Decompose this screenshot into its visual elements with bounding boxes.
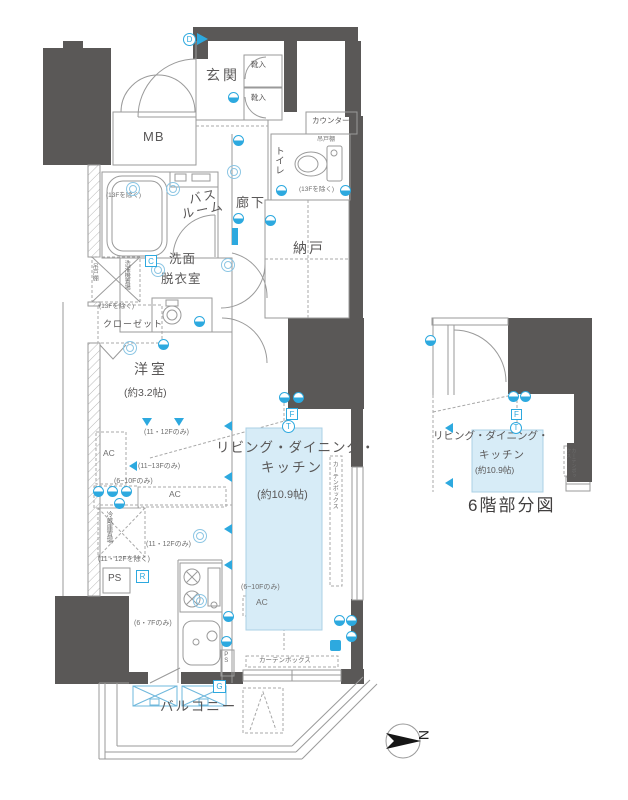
subplan-ldk-size: (約10.9帖) [475,466,514,475]
subplan-curtain-box-label: カーテンボックス [565,448,576,482]
light-icon [265,215,276,226]
light-icon [121,486,132,497]
balcony-outline [99,677,377,759]
note-except-11-12f: (11・12Fを除く) [98,556,150,563]
subplan-f-badge: F [511,409,522,420]
note-6-7f-only: (6・7Fのみ) [134,620,172,627]
doorbell-arrow-icon [197,33,208,45]
light-icon [520,391,531,402]
light-icon [158,339,169,350]
doorbell-icon: D [183,33,196,46]
panel-icon [232,228,238,245]
entrance-door-arc [138,59,196,117]
ceiling-light-icon [227,165,241,179]
room-label-storage: 納戸 [293,241,325,255]
ceiling-light-icon [221,258,235,272]
note-6-10f-only-2: (6~10Fのみ) [241,584,280,591]
pipe-space-label: PS [108,574,121,584]
ceiling-light-icon [126,182,140,196]
hatched-wall [88,165,100,596]
speaker-icon [445,478,453,488]
room-label-closet: クローゼット [103,320,163,329]
laundry-space-label: 洗濯機置場 [123,260,129,302]
light-icon [293,392,304,403]
curtain-box-label-bottom: カーテンボックス [259,658,311,665]
speaker-icon [224,560,232,570]
room-label-western: 洋室 [134,362,168,376]
light-icon [194,316,205,327]
shoe-cabinet-label-2: 靴入 [251,94,266,102]
light-icon [223,611,234,622]
toilet-tank [327,146,342,181]
shoe-cabinet-label-1: 靴入 [251,61,266,69]
subplan-door-arc [454,330,506,382]
western-room-size: (約3.2帖) [124,388,167,399]
speaker-icon [129,461,137,471]
meter-box-label: MB [143,130,165,143]
light-icon [228,92,239,103]
subplan-t-badge: T [510,422,522,434]
mb-door-arc [121,75,158,112]
light-icon [114,498,125,509]
note-6-10f-only-1: (6~10Fのみ) [114,478,153,485]
light-icon [425,335,436,346]
light-icon [279,392,290,403]
note-11-12f-only-2: (11・12Fのみ) [146,541,191,548]
floorplan-canvas: 玄関 靴入 靴入 MB カウンター 吊戸棚 トイレ (13Fを除く) 廊下 バス… [0,0,628,800]
ldk-label-line1: リビング・ダイニング・ [216,441,376,455]
room-label-hallway: 廊下 [236,196,266,209]
speaker-icon [224,472,232,482]
ac-label-3: AC [256,598,268,607]
washroom-label-line1: 洗面 [169,253,196,266]
ldk-size: (約10.9帖) [257,490,308,501]
symbol-c-badge: C [145,255,157,267]
light-icon [233,213,244,224]
room-label-balcony: バルコニー [160,700,237,714]
ceiling-light-icon [123,341,137,355]
pipe-space-label-2: PS [223,652,229,672]
fridge-space-label: 冷蔵庫置場 [104,511,111,547]
symbol-t-badge: T [282,420,295,433]
light-icon [233,135,244,146]
speaker-icon [224,524,232,534]
light-icon [340,185,351,196]
light-icon [107,486,118,497]
note-except-13f-toilet: (13Fを除く) [299,187,334,194]
sprinkler-icon [142,418,152,426]
light-icon [334,615,345,626]
curtain-box-label-side: カーテンボックス [331,461,337,573]
hanging-shelf-label-toilet: 吊戸棚 [317,137,335,143]
counter-label: カウンター [312,117,350,125]
light-icon [346,631,357,642]
note-except-13f-closet: (13Fを除く) [99,304,134,311]
room-label-genkan: 玄関 [206,68,240,82]
symbol-f-badge: F [286,408,298,420]
light-icon [276,185,287,196]
bath-door-arc [173,215,215,257]
ceiling-light-icon [166,182,180,196]
note-11-12f-only-1: (11・12Fのみ) [144,429,189,436]
ldk-door-arc [222,318,267,363]
ldk-label-line2: キッチン [261,461,323,475]
kitchen-sink [183,621,220,665]
symbol-r-badge: R [136,570,149,583]
intercom-icon [330,640,341,651]
compass-north-label: N [417,730,431,740]
washroom-label-line2: 脱衣室 [161,273,202,286]
light-icon [346,615,357,626]
light-icon [93,486,104,497]
ceiling-light-icon [193,529,207,543]
ac-label-1: AC [103,449,115,458]
subplan-caption: 6階部分図 [468,497,555,514]
light-icon [508,391,519,402]
note-11-13f-only: (11~13Fのみ) [138,463,180,470]
balcony-door [150,668,180,683]
speaker-icon [224,421,232,431]
ceiling-light-icon [193,594,207,608]
subplan-ldk-line2: キッチン [479,450,525,461]
light-icon [221,636,232,647]
toilet-bowl [295,152,327,176]
symbol-g-badge: G [213,680,226,693]
sprinkler-icon [174,418,184,426]
ac-label-2: AC [169,490,181,499]
hanging-shelf-label-laundry: 吊戸棚 [91,263,97,293]
speaker-icon [445,423,453,433]
washroom-door-arc [232,253,267,298]
